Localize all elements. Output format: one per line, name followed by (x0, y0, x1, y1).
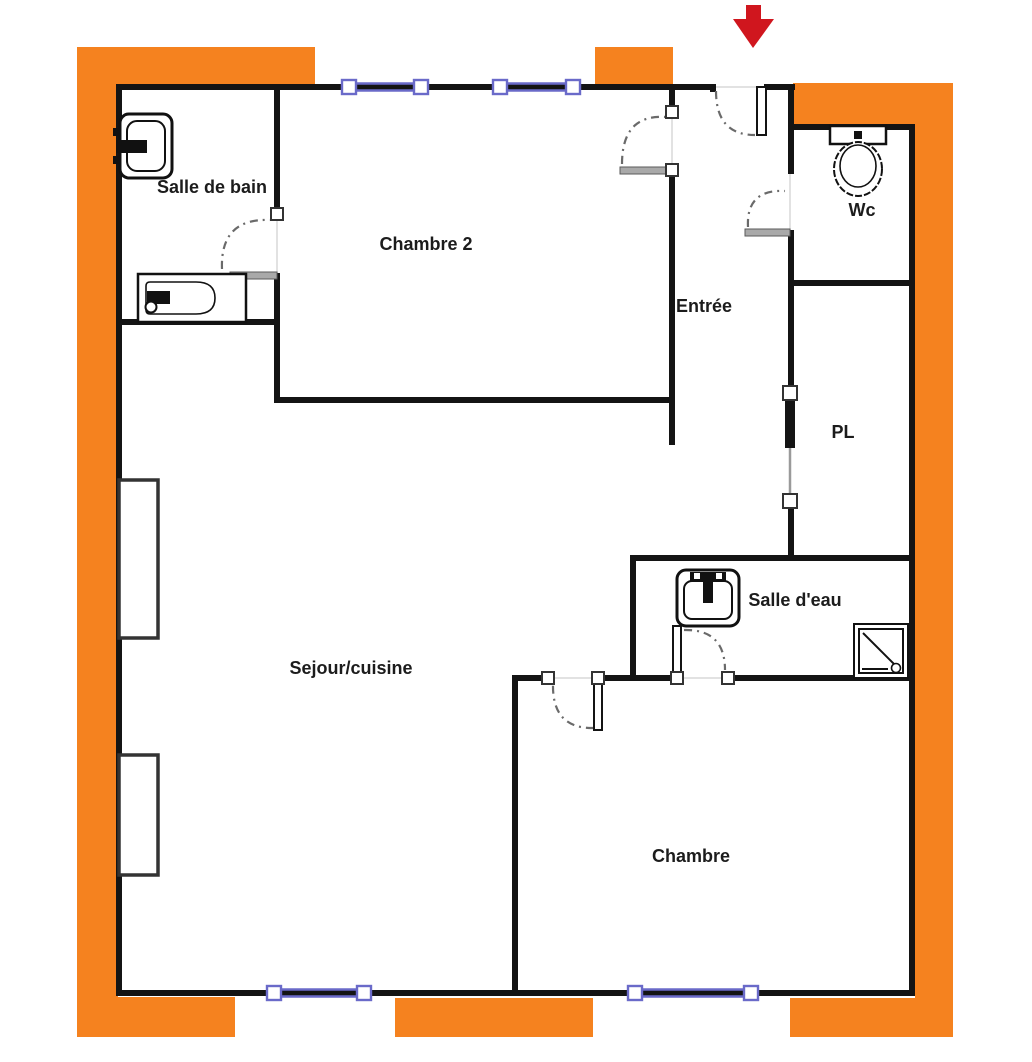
insulation-segment (915, 83, 953, 1037)
pl-sliding-door (783, 386, 797, 508)
walls (116, 84, 915, 996)
chambre2-door (620, 106, 678, 176)
wc-door (745, 191, 790, 236)
wall-segment (788, 506, 794, 561)
entrance-arrow-icon (733, 5, 774, 48)
wall-segment (788, 280, 915, 286)
insulation-segment (790, 998, 953, 1037)
wall-segment (788, 84, 794, 174)
doors (222, 84, 797, 730)
salle-de-bain-door (222, 208, 283, 279)
chambre-door (542, 672, 604, 730)
wall-segment (274, 273, 280, 403)
insulation-segment (77, 997, 235, 1037)
room-label-salle-deau: Salle d'eau (748, 590, 841, 610)
insulation-segment (395, 998, 593, 1037)
floor-plan-canvas: Salle de bain Chambre 2 Entrée Wc PL Sal… (0, 0, 1032, 1062)
radiator-icon (119, 480, 158, 638)
room-label-entree: Entrée (676, 296, 732, 316)
radiator-icon (119, 755, 158, 875)
wall-segment (669, 168, 675, 445)
threshold (671, 114, 673, 168)
floor-plan-drawing: Salle de bain Chambre 2 Entrée Wc PL Sal… (0, 0, 1032, 1062)
toilet-icon (830, 126, 886, 196)
room-label-salle-de-bain: Salle de bain (157, 177, 267, 197)
insulation-segment (77, 47, 118, 1037)
washbasin-icon (677, 570, 739, 626)
entrance-door (710, 84, 766, 135)
threshold (681, 677, 726, 679)
threshold (716, 86, 763, 88)
salle-deau-door (671, 626, 734, 684)
room-label-pl: PL (831, 422, 854, 442)
room-label-chambre: Chambre (652, 846, 730, 866)
threshold (550, 677, 596, 679)
bathtub-icon (138, 274, 246, 322)
wall-segment (596, 675, 679, 681)
wall-segment (512, 675, 518, 996)
wall-segment (274, 84, 280, 217)
room-label-chambre2: Chambre 2 (379, 234, 472, 254)
wall-segment (274, 397, 675, 403)
threshold (276, 217, 278, 273)
insulation-segment (595, 47, 673, 86)
wall-segment (630, 555, 915, 561)
insulation-segment (77, 47, 315, 86)
shower-tray-icon (854, 624, 908, 678)
washbasin-icon (113, 114, 172, 178)
threshold (789, 174, 791, 230)
wall-segment (788, 230, 794, 388)
wall-segment (630, 555, 636, 681)
room-label-sejour-cuisine: Sejour/cuisine (289, 658, 412, 678)
room-label-wc: Wc (849, 200, 876, 220)
